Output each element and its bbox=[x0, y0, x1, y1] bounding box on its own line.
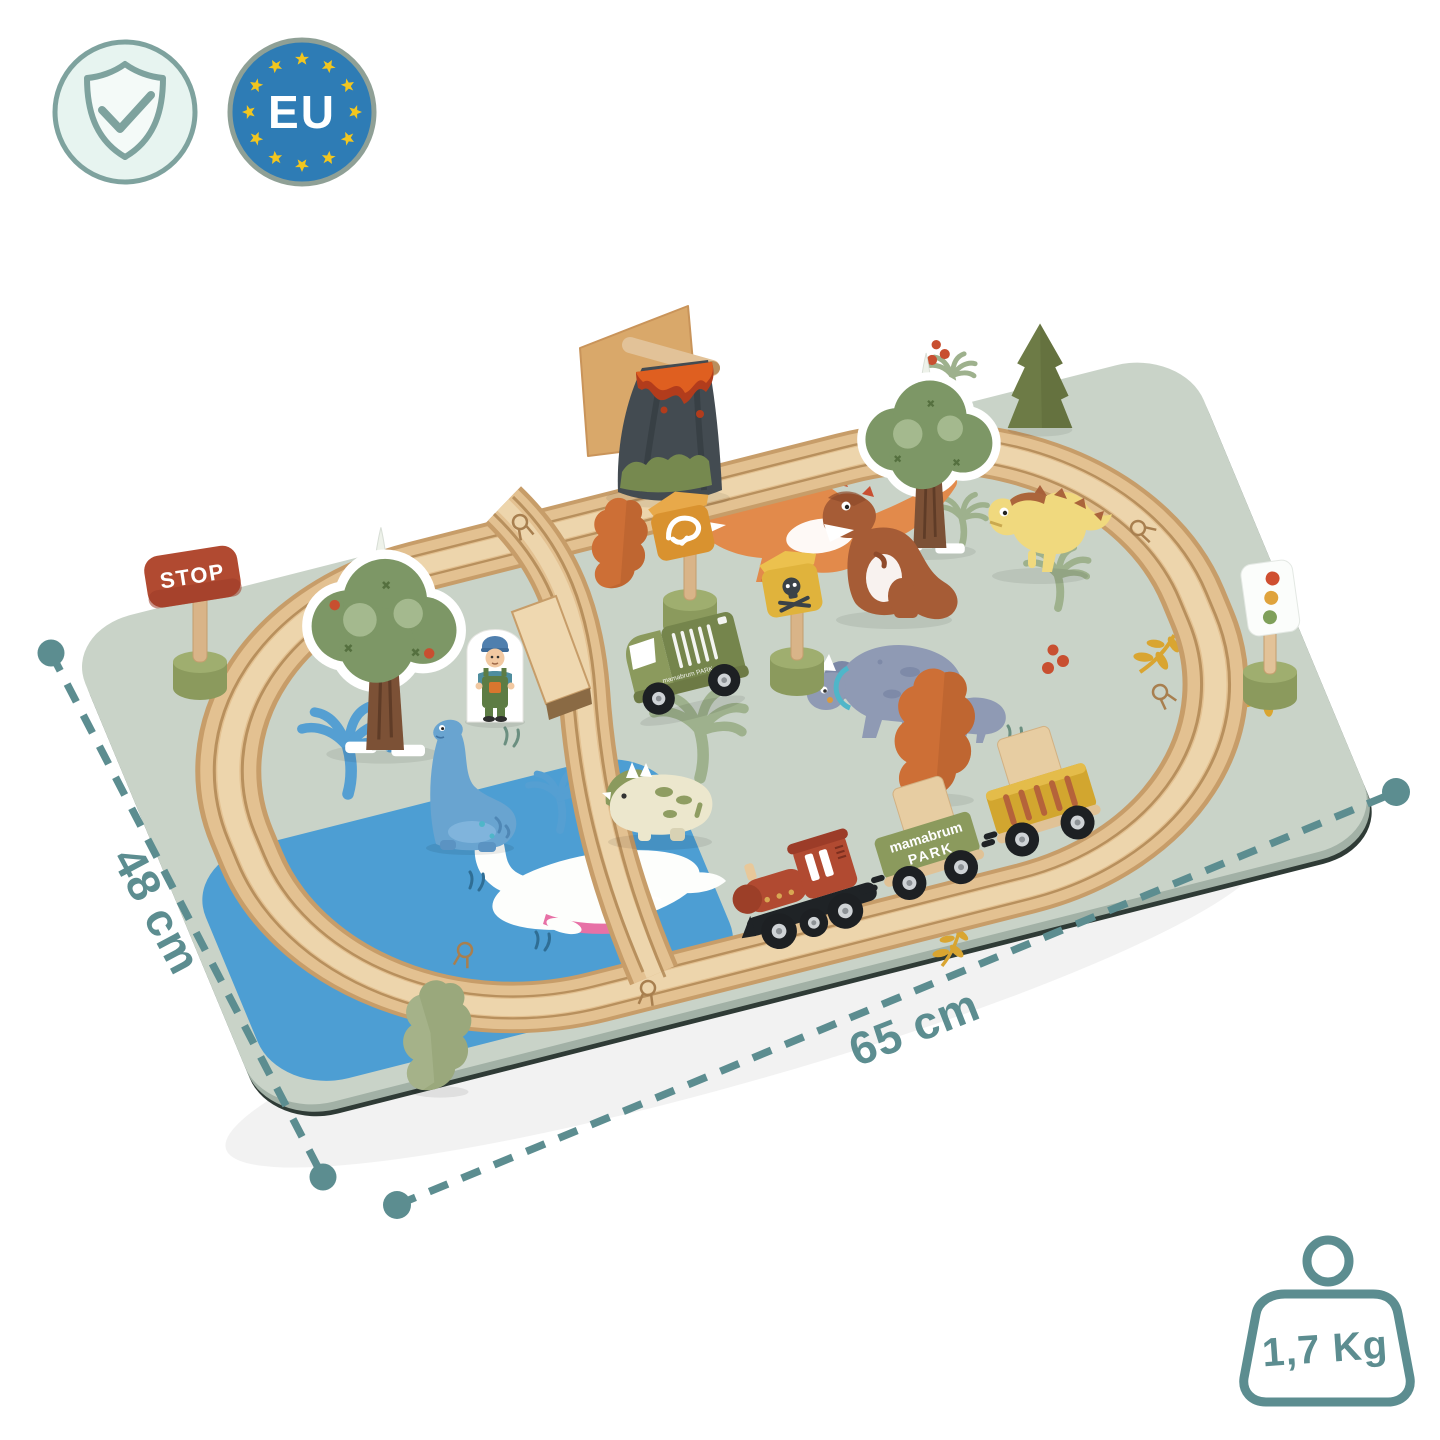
eu-badge: EU bbox=[230, 40, 374, 184]
dimension-dot bbox=[310, 1164, 337, 1191]
weight-label: 1,7 Kg bbox=[1261, 1323, 1390, 1376]
product-photo: STOP bbox=[0, 0, 1440, 1440]
dimension-dot bbox=[38, 640, 65, 667]
quality-badge bbox=[55, 42, 195, 182]
volcano bbox=[580, 306, 730, 508]
worker-figure bbox=[465, 630, 525, 729]
dimension-dot bbox=[1382, 778, 1410, 806]
dimension-dot bbox=[383, 1191, 411, 1219]
toy-scene: STOP bbox=[0, 0, 1440, 1440]
eu-badge-label: EU bbox=[268, 86, 336, 138]
weight-annotation: 1,7 Kg bbox=[1244, 1240, 1411, 1402]
weight-icon bbox=[1244, 1240, 1411, 1402]
